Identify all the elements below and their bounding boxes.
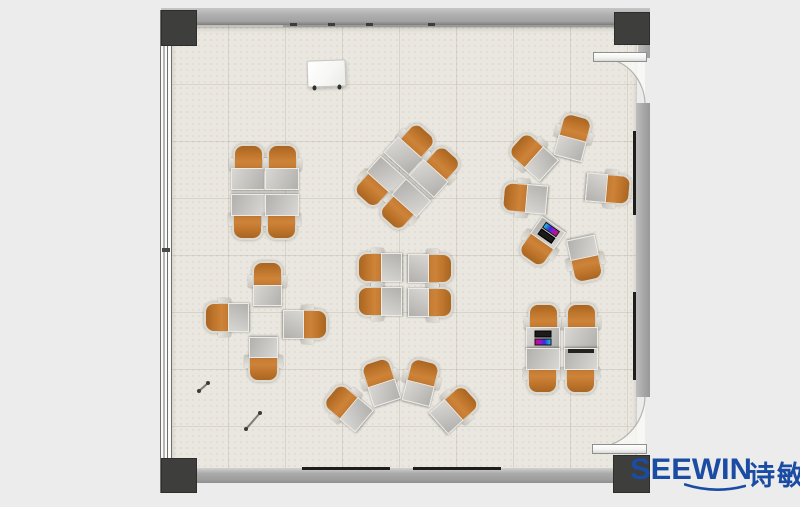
tablet-chair-unit xyxy=(357,251,407,285)
tablet-arm-top-view xyxy=(381,254,402,283)
tablet-device-icon xyxy=(568,349,594,353)
tablet-arm-top-view xyxy=(253,285,282,306)
tablet-chair-unit xyxy=(204,301,254,335)
whiteboard xyxy=(307,59,347,87)
tablet-arm-top-view xyxy=(250,337,279,358)
tablet-chair-unit xyxy=(357,285,407,319)
desk-top-view xyxy=(526,348,560,370)
whiteboard-caster xyxy=(337,84,341,89)
tablet-chair-unit xyxy=(247,332,281,382)
desk-chair-unit xyxy=(264,144,300,194)
baseboard-dash xyxy=(413,467,501,470)
tablet-chair-unit xyxy=(278,307,328,341)
desk-top-view xyxy=(564,348,598,370)
wall-mounted-strip xyxy=(633,131,636,215)
tablet-arm-top-view xyxy=(525,184,548,215)
wall-top xyxy=(161,8,650,25)
tablet-chair-unit xyxy=(580,169,633,207)
desk-top-view xyxy=(265,194,299,216)
column-post-top-right xyxy=(614,12,650,45)
brand-name-cn: 诗敏 xyxy=(748,454,800,493)
tablet-arm-top-view xyxy=(381,288,402,317)
desk-top-view xyxy=(231,168,265,190)
logo-swoosh-icon xyxy=(684,483,746,493)
brand-name-en: SEEWIN xyxy=(630,453,752,487)
tablet-arm-top-view xyxy=(283,310,304,339)
desk-top-view xyxy=(265,168,299,190)
rail-tick xyxy=(328,23,335,26)
column-post-top-left xyxy=(161,10,197,46)
brand-logo: SEEWIN 诗敏 xyxy=(628,451,798,497)
whiteboard-caster xyxy=(312,85,316,90)
rail-tick xyxy=(428,23,435,26)
desk-chair-unit xyxy=(563,344,599,394)
tablet-arm-top-view xyxy=(408,288,429,317)
wall-bottom xyxy=(161,468,650,483)
rail-tick xyxy=(366,23,373,26)
tablet-chair-unit xyxy=(403,251,453,285)
laptop-icon xyxy=(537,222,560,244)
desk-top-view xyxy=(231,194,265,216)
rail-tick xyxy=(290,23,297,26)
scene: SEEWIN 诗敏 xyxy=(0,0,800,507)
desk-chair-unit xyxy=(230,144,266,194)
desk-chair-unit xyxy=(230,190,266,240)
desk-chair-unit xyxy=(525,344,561,394)
tablet-chair-unit xyxy=(403,285,453,319)
tablet-arm-top-view xyxy=(228,304,249,333)
column-post-bottom-left xyxy=(161,458,197,493)
window-mullion-mark xyxy=(162,248,170,252)
wall-mounted-strip xyxy=(633,292,636,380)
door-leaf-top-right xyxy=(593,52,647,62)
wall-right xyxy=(636,103,650,397)
tablet-arm-top-view xyxy=(585,172,608,203)
tablet-chair-unit xyxy=(250,261,284,311)
tablet-arm-top-view xyxy=(408,254,429,283)
wall-rail xyxy=(283,25,637,27)
desk-chair-unit xyxy=(264,190,300,240)
baseboard-dash xyxy=(302,467,390,470)
laptop-keyboard xyxy=(535,331,552,338)
